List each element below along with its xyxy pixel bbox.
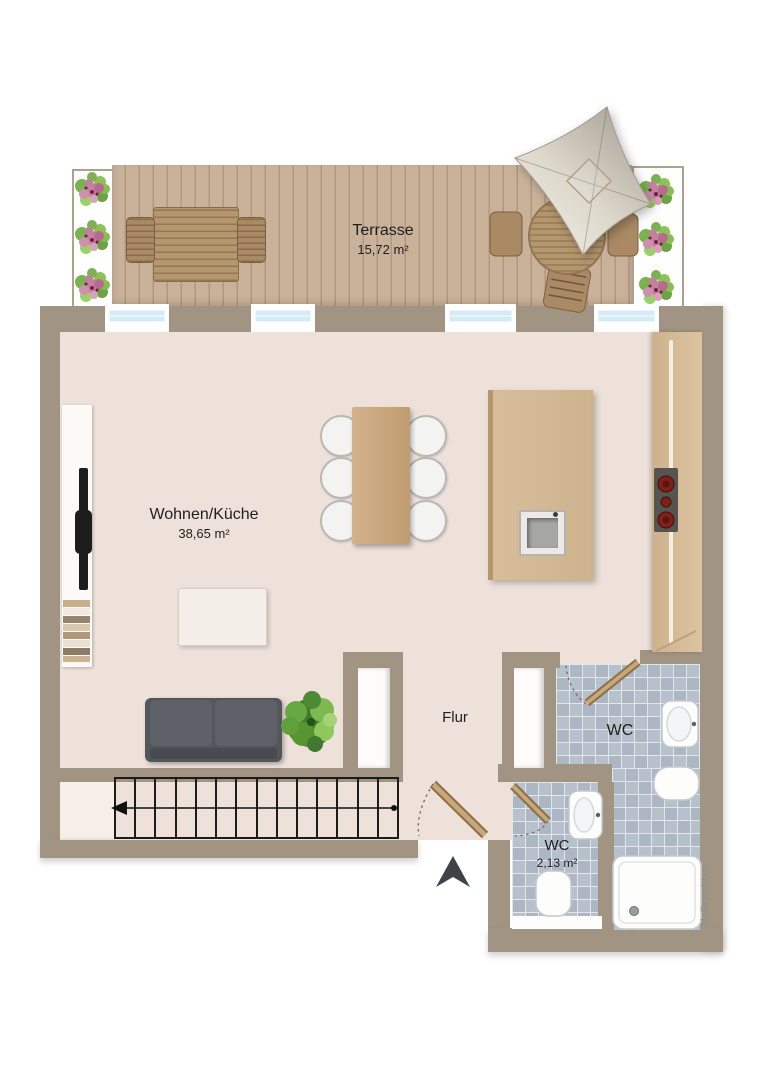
wall-wc-top-left	[544, 652, 556, 770]
dining-table	[352, 407, 410, 544]
entrance-arrow-icon	[436, 856, 470, 887]
book-stack	[63, 600, 90, 662]
dining-chair-5	[405, 457, 447, 499]
floor-plan: Terrasse 15,72 m² Wohnen/Küche 38,65 m² …	[0, 0, 763, 1080]
wall-doorway-b-left	[502, 668, 514, 770]
terrace-chair-left	[126, 217, 155, 263]
window-3	[445, 304, 516, 332]
wall-doorway-a-left	[343, 668, 358, 770]
wohnen-kueche-name: Wohnen/Küche	[134, 505, 274, 526]
sofa-cushion-right	[215, 700, 277, 746]
wohnen-kueche-area: 38,65 m²	[134, 526, 274, 543]
wall-wc-top-head	[640, 650, 700, 664]
window-1-glass	[109, 310, 165, 322]
window-4-glass	[598, 310, 655, 322]
wc-top-name: WC	[595, 721, 645, 742]
wall-bath-bottom	[488, 928, 723, 952]
terrasse-name: Terrasse	[313, 221, 453, 242]
island-sink-basin	[527, 518, 558, 548]
terrace-chair-right	[237, 217, 266, 263]
wall-doorway-a-right	[390, 668, 403, 770]
room-label-wc-top: WC	[595, 721, 645, 742]
wall-doorway-a-head	[343, 652, 403, 668]
island-faucet	[553, 512, 558, 517]
terrace-table	[153, 207, 239, 282]
room-label-terrasse: Terrasse 15,72 m²	[313, 221, 453, 259]
cooktop	[654, 468, 678, 532]
watermark: McGrundriss	[699, 866, 710, 926]
room-label-flur: Flur	[420, 708, 490, 728]
planter-box-left	[72, 169, 116, 312]
window-1	[105, 304, 169, 332]
wc-bottom-area: 2,13 m²	[517, 856, 597, 872]
wall-right	[700, 306, 723, 952]
wall-bottom	[40, 838, 418, 858]
coffee-table	[178, 588, 267, 646]
doorway-kitchen-hall	[514, 668, 544, 768]
floor-wc-right	[612, 768, 700, 930]
window-4	[594, 304, 659, 332]
terrasse-area: 15,72 m²	[313, 242, 453, 259]
flur-name: Flur	[420, 708, 490, 728]
floor-wc-top	[556, 664, 700, 768]
tv-stand	[75, 510, 92, 554]
window-3-glass	[449, 310, 512, 322]
wall-wc-bottom-right	[598, 782, 614, 930]
sofa-backrest	[150, 748, 277, 759]
wall-left	[40, 306, 60, 858]
planter-box-right	[632, 166, 684, 312]
room-label-wc-bottom: WC 2,13 m²	[517, 836, 597, 871]
wc-bottom-window	[512, 916, 602, 929]
sofa-cushion-left	[150, 700, 212, 746]
wall-stairs-top	[60, 768, 403, 782]
dining-chair-6	[405, 500, 447, 542]
window-2	[251, 304, 315, 332]
doorway-living-hall	[358, 668, 390, 768]
room-label-wohnen-kueche: Wohnen/Küche 38,65 m²	[134, 505, 274, 543]
wc-bottom-name: WC	[517, 836, 597, 856]
window-2-glass	[255, 310, 311, 322]
dining-chair-4	[405, 415, 447, 457]
floor-stair-landing	[60, 782, 115, 838]
